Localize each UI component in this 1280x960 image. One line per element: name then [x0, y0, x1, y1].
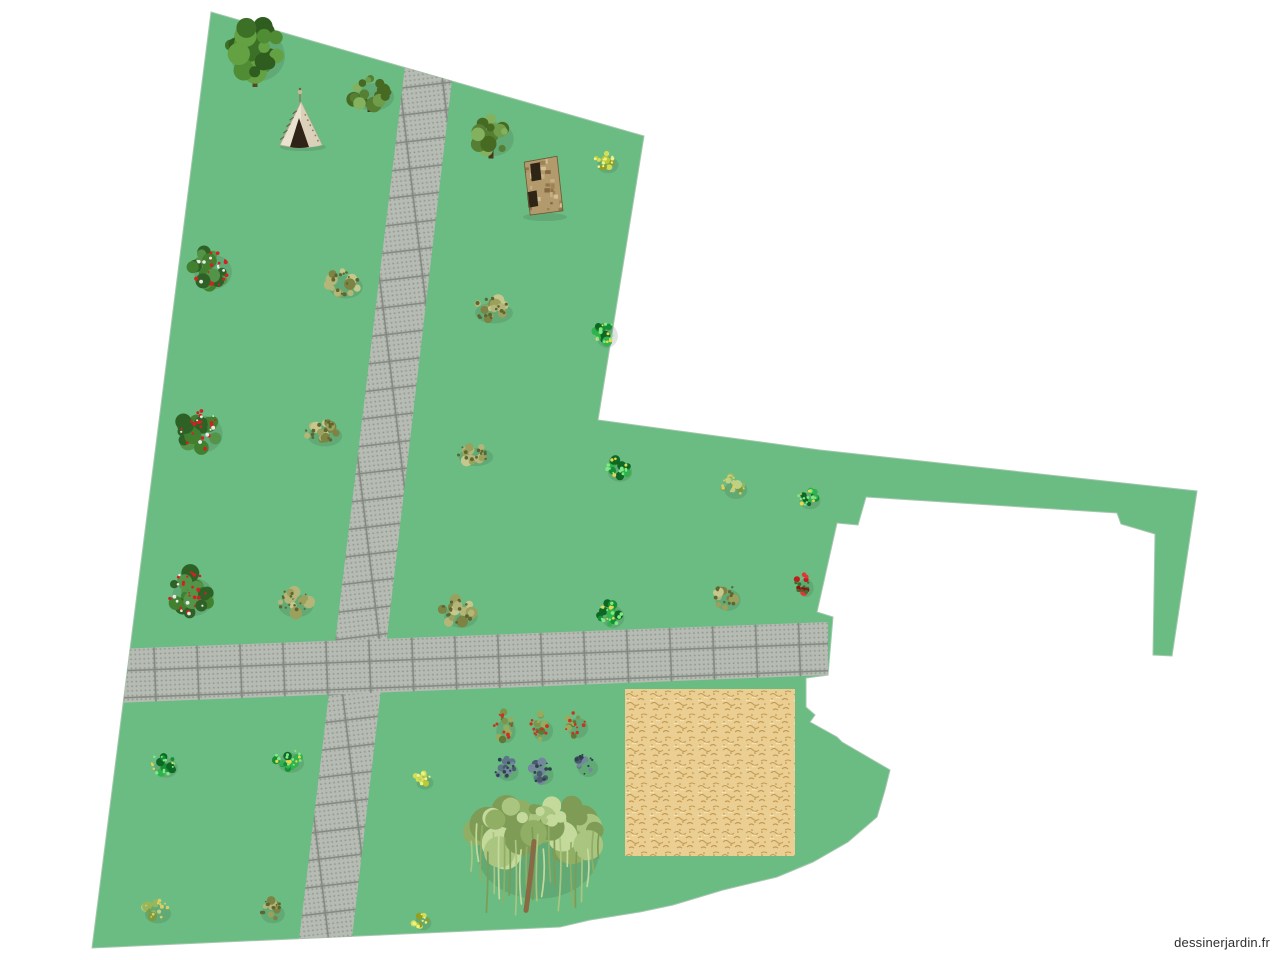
sand-area[interactable] [625, 689, 795, 856]
watermark: dessinerjardin.fr [1174, 935, 1270, 950]
sand-layer [625, 689, 795, 856]
garden-plan [0, 0, 1280, 960]
garden-planner-canvas: dessinerjardin.fr [0, 0, 1280, 960]
